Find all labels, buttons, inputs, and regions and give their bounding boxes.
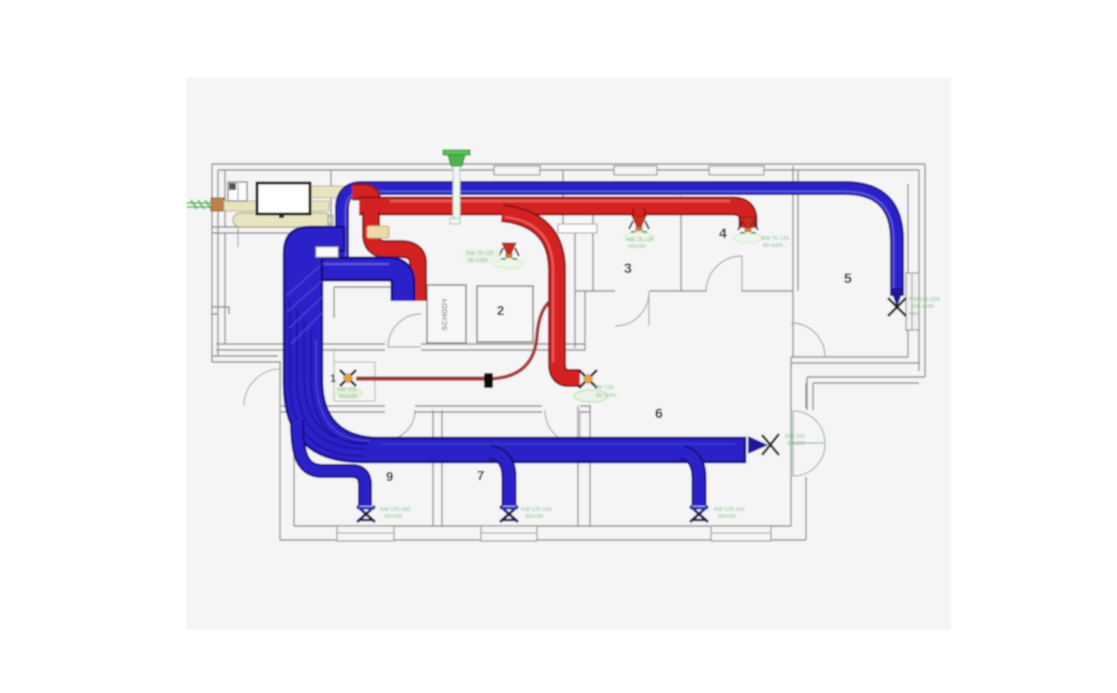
svg-text:KW 125: KW 125	[337, 387, 357, 393]
svg-text:SCHODY: SCHODY	[442, 298, 449, 331]
svg-text:naw: naw	[909, 311, 919, 317]
svg-text:KW 125: KW 125	[594, 385, 614, 391]
svg-text:30 m3/h: 30 m3/h	[468, 258, 488, 264]
svg-text:NW 125-200: NW 125-200	[909, 297, 940, 303]
svg-text:9: 9	[386, 469, 393, 484]
svg-text:6: 6	[655, 405, 663, 421]
svg-text:KW 125-160: KW 125-160	[380, 507, 411, 513]
svg-text:3: 3	[624, 260, 632, 276]
svg-text:50m3/h: 50m3/h	[525, 514, 543, 520]
svg-text:30m3/h: 30m3/h	[339, 394, 357, 400]
svg-text:4: 4	[719, 225, 727, 241]
svg-text:KW 125-160: KW 125-160	[521, 507, 552, 513]
svg-text:2: 2	[497, 303, 504, 318]
svg-text:NW 75-125: NW 75-125	[466, 251, 494, 257]
svg-text:1: 1	[330, 373, 336, 385]
svg-text:50m3/h: 50m3/h	[384, 514, 402, 520]
svg-text:NW 160: NW 160	[785, 434, 805, 440]
svg-text:7: 7	[477, 468, 484, 483]
svg-text:50 m3/h: 50 m3/h	[763, 243, 783, 249]
svg-text:NW 75-125: NW 75-125	[761, 236, 789, 242]
svg-text:50m3/h: 50m3/h	[628, 244, 646, 250]
svg-text:NW 75-125: NW 75-125	[626, 237, 654, 243]
svg-text:100 m3/h: 100 m3/h	[911, 304, 934, 310]
svg-text:KW 125-160: KW 125-160	[714, 507, 745, 513]
svg-text:50m3/h: 50m3/h	[718, 514, 736, 520]
svg-text:5: 5	[844, 270, 852, 286]
svg-text:80m3/h: 80m3/h	[787, 441, 805, 447]
svg-text:50 m3/h: 50 m3/h	[596, 393, 616, 399]
